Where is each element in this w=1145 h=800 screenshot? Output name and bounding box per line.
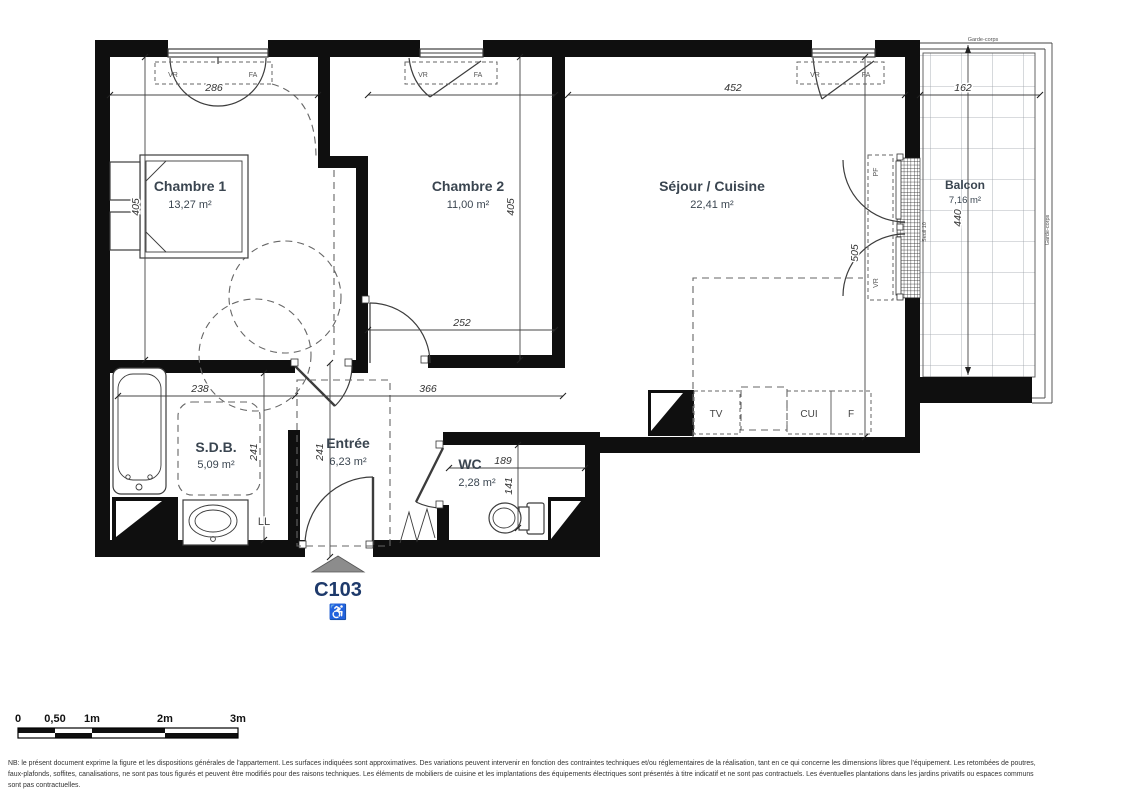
scale-tick-2m: 2m <box>157 713 173 725</box>
vr-label: VR <box>418 72 428 79</box>
vr-label: VR <box>168 72 178 79</box>
disclaimer-line2: faux-plafonds, soffites, canalisations, … <box>8 771 1034 778</box>
disclaimer-line1: NB: le présent document exprime la figur… <box>8 760 1036 767</box>
floor-plan-svg: 286 405 252 405 452 505 162 440 238 241 … <box>0 0 1145 800</box>
dim-entree-width: 366 <box>419 383 437 395</box>
dim-wc-depth: 141 <box>503 477 515 495</box>
fa-label: FA <box>862 72 871 79</box>
fa-label: FA <box>249 72 258 79</box>
fridge-label: F <box>848 409 854 420</box>
room-label-entree: Entrée <box>326 435 370 451</box>
dimension-lines <box>107 45 1043 560</box>
floor-plan-page: 286 405 252 405 452 505 162 440 238 241 … <box>0 0 1145 800</box>
nightstand <box>110 162 140 200</box>
dim-sejour-width: 452 <box>724 82 742 94</box>
scale-tick-1m: 1m <box>84 713 100 725</box>
dim-sdb-depth: 241 <box>248 443 260 462</box>
scale-tick-050: 0,50 <box>44 713 65 725</box>
entrance-arrow <box>312 556 364 572</box>
room-area-chambre1: 13,27 m² <box>168 199 212 211</box>
room-area-chambre2: 11,00 m² <box>447 199 490 211</box>
balcony <box>920 43 1052 403</box>
unit-code: C103 <box>314 579 362 601</box>
dim-chambre1-width: 286 <box>204 82 223 94</box>
tv-label: TV <box>710 409 723 420</box>
duct-kitchen <box>648 390 694 436</box>
dim-balcon-width: 162 <box>954 82 972 94</box>
doormat-symbol <box>400 509 435 543</box>
ll-label: LL <box>258 516 270 528</box>
disclaimer: NB: le présent document exprime la figur… <box>8 760 1036 789</box>
scale-tick-0: 0 <box>15 713 21 725</box>
door-wc <box>416 448 443 508</box>
door-entrance <box>305 477 373 545</box>
room-label-balcon: Balcon <box>945 178 985 192</box>
dim-sdb-width: 238 <box>190 383 209 395</box>
bathtub <box>113 368 166 494</box>
vr-label: VR <box>810 72 820 79</box>
room-area-entree: 6,23 m² <box>329 456 367 468</box>
room-label-chambre1: Chambre 1 <box>154 178 227 194</box>
dim-entree-depth: 241 <box>314 443 326 462</box>
doors <box>295 303 443 545</box>
room-label-sdb: S.D.B. <box>195 439 236 455</box>
washbasin <box>183 500 248 545</box>
kitchen-free-box <box>741 387 787 430</box>
nightstand <box>110 212 140 250</box>
balcony-tiles <box>920 53 1035 377</box>
scale-tick-3m: 3m <box>230 713 246 725</box>
entrance-marker: C103 ♿ <box>312 556 364 621</box>
disclaimer-line3: sont pas contractuelles. <box>8 782 80 789</box>
balcony-french-door <box>843 160 905 296</box>
duct-bathroom <box>112 497 178 541</box>
room-label-wc: WC <box>458 456 481 472</box>
window-annotation-boxes <box>155 62 893 300</box>
door-chambre1 <box>295 366 352 406</box>
accessibility-icon: ♿ <box>329 603 348 621</box>
vr-label: VR <box>873 278 880 288</box>
room-area-wc: 2,28 m² <box>458 477 496 489</box>
dim-wc-width: 189 <box>494 455 512 467</box>
cui-label: CUI <box>800 409 817 420</box>
fa-label: FA <box>474 72 483 79</box>
pf-label: PF <box>873 168 880 177</box>
dim-chambre2-depth: 405 <box>505 198 517 216</box>
balcony-bottom-wall <box>920 377 1032 403</box>
room-label-chambre2: Chambre 2 <box>432 178 505 194</box>
seuil-label: Seuil 10 <box>922 222 928 242</box>
dashed-guides <box>178 84 863 546</box>
door-chambre2 <box>370 303 430 363</box>
dim-balcon-depth: 440 <box>952 209 964 227</box>
room-area-sejour: 22,41 m² <box>690 199 734 211</box>
room-label-sejour: Séjour / Cuisine <box>659 178 765 194</box>
dim-sejour-depth: 505 <box>849 244 861 262</box>
room-area-balcon: 7,16 m² <box>949 195 981 206</box>
scale-bar: 0 0,50 1m 2m 3m <box>15 713 246 738</box>
garde-corps-label-top: Garde-corps <box>968 37 999 43</box>
turning-circle-sdb <box>199 299 311 411</box>
garde-corps-label-right: Garde-corps <box>1045 214 1051 245</box>
dim-chambre2-width: 252 <box>452 317 471 329</box>
duct-wc <box>548 497 585 543</box>
dim-chambre1-depth: 405 <box>130 198 142 216</box>
room-area-sdb: 5,09 m² <box>197 459 235 471</box>
